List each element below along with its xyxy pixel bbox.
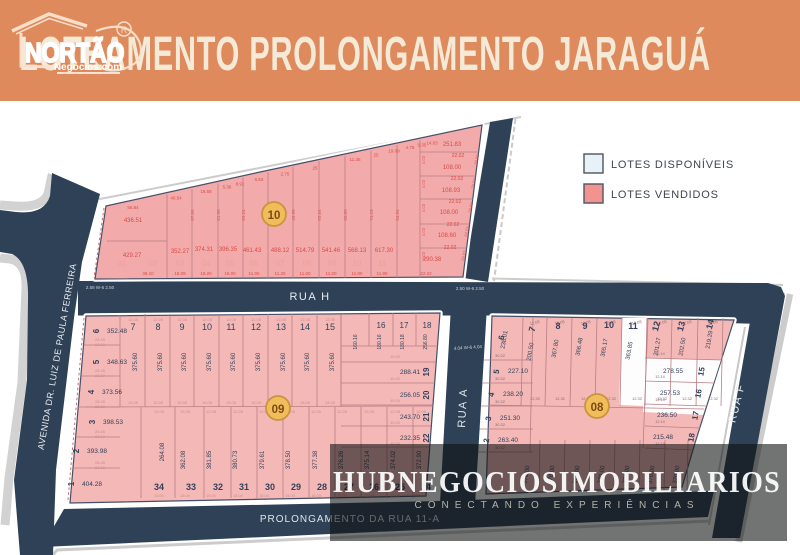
svg-text:12.05: 12.05 [154, 409, 165, 414]
svg-text:14.03: 14.03 [426, 141, 438, 146]
svg-text:15.00: 15.00 [154, 493, 165, 498]
svg-text:15.05: 15.05 [325, 400, 336, 405]
svg-text:541.46: 541.46 [322, 248, 341, 254]
svg-text:12.05: 12.05 [311, 409, 322, 414]
svg-text:232.35: 232.35 [400, 435, 420, 442]
svg-text:11.90: 11.90 [377, 271, 388, 276]
svg-text:15.00: 15.00 [180, 493, 191, 498]
svg-text:23.10: 23.10 [95, 434, 106, 439]
svg-text:10: 10 [353, 259, 362, 268]
svg-text:11: 11 [378, 259, 387, 268]
svg-text:160.16: 160.16 [353, 334, 359, 350]
svg-text:05: 05 [226, 259, 235, 268]
svg-text:256.80: 256.80 [423, 334, 429, 350]
svg-text:11.00: 11.00 [326, 271, 337, 276]
svg-text:4.03: 4.03 [421, 179, 426, 188]
svg-text:380.73: 380.73 [233, 450, 239, 469]
svg-text:31: 31 [239, 482, 249, 492]
svg-text:36.10: 36.10 [142, 271, 154, 276]
svg-text:15.05: 15.05 [153, 400, 164, 405]
svg-text:20: 20 [422, 390, 431, 399]
svg-text:375.60: 375.60 [281, 352, 287, 371]
svg-text:396.35: 396.35 [219, 247, 238, 253]
svg-text:488.12: 488.12 [271, 248, 290, 254]
svg-text:12.05: 12.05 [364, 409, 375, 414]
svg-text:15: 15 [325, 322, 335, 332]
svg-text:12.05: 12.05 [128, 317, 139, 322]
svg-text:263.40: 263.40 [498, 437, 518, 444]
svg-text:12.32: 12.32 [530, 396, 541, 401]
svg-text:19.20: 19.20 [200, 271, 212, 276]
svg-text:393.98: 393.98 [87, 448, 107, 455]
svg-text:404.28: 404.28 [82, 481, 102, 488]
svg-text:15.05: 15.05 [226, 400, 237, 405]
svg-text:LOTES VENDIDOS: LOTES VENDIDOS [611, 189, 719, 201]
svg-text:374.31: 374.31 [195, 247, 214, 253]
svg-text:22.22: 22.22 [420, 271, 432, 276]
svg-text:251.30: 251.30 [500, 415, 520, 422]
svg-text:5: 5 [92, 359, 101, 364]
svg-text:56.84: 56.84 [127, 205, 139, 210]
svg-text:23.10: 23.10 [95, 465, 106, 470]
svg-text:15.05: 15.05 [177, 400, 188, 405]
svg-text:375.60: 375.60 [231, 352, 237, 371]
svg-text:74.19: 74.19 [369, 209, 374, 221]
svg-text:15.05: 15.05 [128, 400, 139, 405]
svg-text:15.00: 15.00 [285, 493, 296, 498]
svg-text:6.53: 6.53 [255, 177, 264, 182]
svg-text:11.00: 11.00 [352, 271, 363, 276]
svg-text:12.05: 12.05 [337, 409, 348, 414]
svg-text:362.08: 362.08 [181, 450, 187, 469]
svg-text:11: 11 [226, 322, 235, 332]
svg-text:568.13: 568.13 [348, 248, 367, 254]
svg-text:348.63: 348.63 [107, 359, 127, 366]
svg-text:398.53: 398.53 [103, 419, 123, 426]
svg-text:215.48: 215.48 [653, 434, 673, 441]
svg-text:30.32: 30.32 [495, 422, 506, 427]
svg-text:227.10: 227.10 [508, 368, 528, 375]
svg-text:3: 3 [88, 419, 97, 424]
svg-text:375.60: 375.60 [305, 352, 311, 371]
svg-text:12.05: 12.05 [300, 317, 311, 322]
svg-text:617.30: 617.30 [375, 248, 394, 254]
svg-text:12: 12 [251, 322, 261, 332]
svg-text:6: 6 [92, 328, 101, 333]
svg-text:63.24: 63.24 [241, 209, 246, 221]
svg-text:15.00: 15.00 [233, 493, 244, 498]
svg-text:12.32: 12.32 [682, 396, 693, 401]
svg-text:4.75: 4.75 [406, 145, 415, 150]
svg-text:2.58 W-6 2.50: 2.58 W-6 2.50 [86, 285, 115, 290]
svg-text:108.60: 108.60 [438, 233, 457, 239]
svg-text:12.14: 12.14 [655, 398, 665, 402]
svg-text:54.54: 54.54 [395, 209, 400, 221]
svg-text:23.10: 23.10 [95, 404, 106, 409]
svg-text:18.58: 18.58 [200, 189, 212, 194]
svg-text:RUA H: RUA H [289, 291, 330, 303]
svg-text:45.05: 45.05 [390, 399, 400, 403]
svg-text:15.00: 15.00 [311, 493, 322, 498]
svg-text:256.05: 256.05 [400, 392, 420, 399]
svg-text:12.05: 12.05 [325, 317, 336, 322]
svg-text:12.14: 12.14 [655, 352, 665, 356]
svg-text:378.50: 378.50 [286, 450, 292, 469]
svg-text:29: 29 [291, 482, 301, 492]
svg-text:22: 22 [422, 433, 431, 442]
svg-text:4.03: 4.03 [421, 227, 426, 236]
svg-text:1: 1 [67, 481, 76, 486]
svg-text:379.61: 379.61 [260, 450, 266, 469]
svg-text:12.05: 12.05 [206, 409, 217, 414]
svg-text:264.08: 264.08 [160, 442, 166, 461]
svg-text:5.36: 5.36 [223, 184, 232, 189]
svg-text:8: 8 [155, 322, 160, 332]
svg-text:32: 32 [213, 482, 223, 492]
svg-text:67.04: 67.04 [190, 209, 195, 221]
svg-text:436.51: 436.51 [124, 218, 143, 224]
svg-text:17: 17 [400, 321, 409, 330]
svg-text:CONECTANDO EXPERIÊNCIAS: CONECTANDO EXPERIÊNCIAS [414, 498, 699, 511]
svg-text:22.02: 22.02 [449, 199, 462, 205]
svg-text:2: 2 [72, 448, 81, 453]
svg-text:288.41: 288.41 [400, 369, 420, 376]
svg-text:63.24: 63.24 [317, 209, 322, 221]
svg-text:18: 18 [423, 321, 432, 330]
svg-text:11.35: 11.35 [350, 157, 361, 162]
svg-text:45.05: 45.05 [390, 355, 400, 359]
svg-text:375.60: 375.60 [182, 352, 188, 371]
svg-text:25: 25 [373, 152, 379, 157]
svg-text:23.10: 23.10 [95, 373, 106, 378]
svg-text:352.48: 352.48 [107, 328, 127, 335]
svg-text:238.20: 238.20 [503, 391, 523, 398]
svg-text:11.00: 11.00 [300, 271, 311, 276]
svg-text:375.60: 375.60 [256, 352, 262, 371]
svg-text:28: 28 [317, 482, 327, 492]
svg-text:12.32: 12.32 [708, 396, 719, 401]
svg-text:381.85: 381.85 [207, 450, 213, 469]
svg-text:34: 34 [154, 482, 164, 492]
svg-text:4: 4 [87, 389, 96, 394]
svg-text:15.05: 15.05 [251, 400, 262, 405]
svg-text:15.00: 15.00 [259, 493, 270, 498]
svg-text:02: 02 [149, 259, 158, 268]
svg-text:30.32: 30.32 [495, 353, 506, 358]
svg-text:12.05: 12.05 [180, 409, 191, 414]
svg-text:12.05: 12.05 [153, 317, 164, 322]
svg-text:12.05: 12.05 [226, 317, 237, 322]
svg-text:30.32: 30.32 [495, 376, 506, 381]
svg-text:49.99: 49.99 [291, 209, 296, 221]
svg-text:12.14: 12.14 [655, 420, 665, 424]
svg-text:375.60: 375.60 [133, 352, 139, 371]
svg-text:461.43: 461.43 [243, 248, 262, 254]
svg-text:180.16: 180.16 [377, 334, 383, 350]
svg-text:08: 08 [591, 402, 604, 414]
svg-text:30.32: 30.32 [495, 399, 506, 404]
svg-text:09: 09 [272, 404, 285, 416]
svg-text:180.18: 180.18 [400, 334, 406, 350]
svg-text:23.10: 23.10 [95, 342, 106, 347]
svg-text:Negócios.com: Negócios.com [54, 62, 122, 73]
svg-text:10: 10 [268, 210, 281, 222]
svg-text:108.00: 108.00 [440, 210, 459, 216]
svg-text:22.02: 22.02 [444, 245, 457, 251]
svg-text:22.02: 22.02 [447, 222, 460, 228]
svg-text:108.00: 108.00 [443, 165, 462, 171]
svg-text:375.60: 375.60 [330, 352, 336, 371]
svg-text:2.75: 2.75 [281, 172, 290, 177]
svg-text:4.03: 4.03 [421, 203, 426, 212]
svg-text:108.93: 108.93 [442, 188, 461, 194]
svg-text:08: 08 [303, 259, 312, 268]
svg-text:07: 07 [276, 259, 285, 268]
svg-text:375.60: 375.60 [207, 352, 213, 371]
svg-text:352.27: 352.27 [171, 249, 190, 255]
svg-text:25: 25 [312, 165, 318, 170]
svg-text:2.50 W-6 2.50: 2.50 W-6 2.50 [456, 286, 485, 291]
svg-text:HUBNEGOCIOSIMOBILIARIOS: HUBNEGOCIOSIMOBILIARIOS [333, 466, 781, 500]
svg-text:12.32: 12.32 [555, 396, 566, 401]
svg-text:01: 01 [118, 259, 127, 268]
svg-text:11.00: 11.00 [249, 271, 260, 276]
svg-text:45.05: 45.05 [390, 421, 400, 425]
svg-text:12.32: 12.32 [632, 396, 643, 401]
svg-text:22.02: 22.02 [452, 153, 465, 159]
svg-text:278.55: 278.55 [663, 368, 683, 375]
svg-text:06: 06 [250, 259, 259, 268]
svg-text:19.09: 19.09 [388, 149, 400, 154]
svg-text:22.02: 22.02 [451, 176, 464, 182]
svg-text:10: 10 [202, 322, 212, 332]
svg-text:LOTES DISPONÍVEIS: LOTES DISPONÍVEIS [611, 158, 734, 171]
svg-text:30: 30 [265, 482, 275, 492]
svg-text:8.91: 8.91 [236, 181, 245, 186]
svg-text:12.05: 12.05 [390, 409, 401, 414]
svg-text:33: 33 [186, 482, 196, 492]
svg-text:18.00: 18.00 [224, 271, 236, 276]
svg-text:03: 03 [176, 259, 185, 268]
svg-text:15.00: 15.00 [206, 493, 217, 498]
svg-text:12.05: 12.05 [177, 317, 188, 322]
svg-text:12.14: 12.14 [655, 375, 665, 379]
svg-text:19: 19 [422, 367, 431, 376]
svg-text:18.09: 18.09 [174, 271, 186, 276]
svg-text:13: 13 [276, 322, 286, 332]
svg-text:R: R [121, 25, 128, 35]
svg-text:04: 04 [202, 259, 211, 268]
svg-text:7: 7 [130, 322, 135, 332]
svg-text:243.70: 243.70 [400, 414, 420, 421]
svg-text:12.05: 12.05 [202, 317, 213, 322]
svg-text:12.05: 12.05 [251, 317, 262, 322]
svg-text:4.03: 4.03 [421, 155, 426, 164]
svg-text:45.05: 45.05 [390, 377, 400, 381]
svg-text:12.05: 12.05 [233, 409, 244, 414]
svg-text:40.54: 40.54 [170, 196, 182, 201]
svg-text:514.79: 514.79 [296, 248, 315, 254]
svg-text:236.50: 236.50 [657, 412, 677, 419]
svg-text:377.38: 377.38 [313, 450, 319, 469]
svg-text:11.20: 11.20 [275, 271, 286, 276]
svg-text:16: 16 [377, 321, 386, 330]
svg-text:12.05: 12.05 [276, 317, 287, 322]
svg-text:9: 9 [179, 322, 184, 332]
svg-text:60.09: 60.09 [343, 209, 348, 221]
svg-text:09: 09 [328, 259, 337, 268]
svg-text:61.90: 61.90 [216, 209, 221, 221]
svg-text:14: 14 [300, 322, 310, 332]
svg-text:251.83: 251.83 [443, 142, 462, 148]
svg-text:15.05: 15.05 [202, 400, 213, 405]
svg-text:RUA A: RUA A [456, 388, 470, 428]
svg-text:4.03: 4.03 [421, 251, 426, 260]
svg-text:12.05: 12.05 [416, 409, 427, 414]
svg-text:373.56: 373.56 [102, 389, 122, 396]
svg-text:15.05: 15.05 [300, 400, 311, 405]
svg-text:375.60: 375.60 [158, 352, 164, 371]
